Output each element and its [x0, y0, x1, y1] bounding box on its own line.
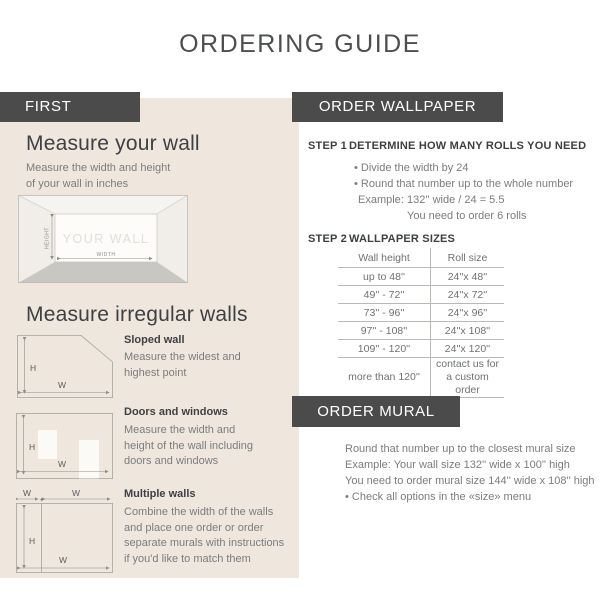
wall-diagram: YOUR WALL HEIGHT WIDTH — [18, 195, 188, 283]
step2-label: STEP 2 — [308, 233, 347, 245]
table-header-roll-size: Roll size — [431, 248, 505, 268]
wall-height-cell: 73'' - 96'' — [338, 304, 431, 322]
step2-title: WALLPAPER SIZES — [349, 233, 455, 245]
your-wall-label: YOUR WALL — [63, 232, 150, 246]
height-label: HEIGHT — [45, 227, 51, 249]
sloped-wall-description-line: highest point — [124, 366, 241, 382]
doors-windows-description-line: Measure the width and — [124, 423, 253, 439]
sloped-wall-diagram: H W — [17, 335, 113, 398]
table-row: 97'' - 108'' 24''x 108'' — [338, 322, 504, 340]
order-wallpaper-banner: ORDER WALLPAPER — [292, 92, 503, 122]
roll-size-cell: 24''x 72'' — [431, 286, 505, 304]
doors-windows-title: Doors and windows — [124, 406, 228, 418]
multiple-walls-description-line: if you'd like to match them — [124, 552, 284, 568]
table-row: up to 48'' 24''x 48'' — [338, 268, 504, 286]
sloped-wall-description: Measure the widest and highest point — [124, 350, 241, 381]
mural-instruction-line: • Check all options in the «size» menu — [345, 489, 595, 505]
table-header-row: Wall height Roll size — [338, 248, 504, 268]
roll-size-cell: 24''x 96'' — [431, 304, 505, 322]
multiple-walls-title: Multiple walls — [124, 488, 196, 500]
roll-size-cell: 24''x 108'' — [431, 322, 505, 340]
doors-windows-description: Measure the width and height of the wall… — [124, 423, 253, 470]
doors-windows-diagram: H W — [16, 413, 113, 479]
table-header-wall-height: Wall height — [338, 248, 431, 268]
order-mural-banner: ORDER MURAL — [292, 396, 460, 427]
h-label: H — [30, 363, 36, 373]
doors-windows-description-line: height of the wall including — [124, 439, 253, 455]
w-label: W — [58, 459, 66, 469]
w-label: W — [72, 488, 80, 498]
mural-instruction-line: Round that number up to the closest mura… — [345, 441, 595, 457]
first-banner: FIRST — [0, 92, 140, 122]
multiple-walls-description-line: separate murals with instructions — [124, 536, 284, 552]
measure-wall-description-line: Measure the width and height — [26, 160, 170, 176]
width-label: WIDTH — [97, 252, 116, 258]
measure-wall-description-line: of your wall in inches — [26, 176, 170, 192]
wall-height-cell: 97'' - 108'' — [338, 322, 431, 340]
wallpaper-sizes-table: Wall height Roll size up to 48'' 24''x 4… — [338, 248, 504, 398]
doors-windows-description-line: doors and windows — [124, 454, 253, 470]
window-shape — [38, 430, 57, 459]
plus-label: + — [39, 497, 43, 504]
table-row: more than 120'' contact us for a custom … — [338, 358, 504, 398]
w-label: W — [58, 380, 66, 390]
w-label: W — [59, 555, 67, 565]
multiple-walls-description-line: Combine the width of the walls — [124, 505, 284, 521]
wall-height-cell: 109'' - 120'' — [338, 340, 431, 358]
example-value: 132'' wide / 24 = 5.5 — [407, 192, 504, 208]
multiple-walls-description-line: and place one order or order — [124, 521, 284, 537]
multiple-walls-diagram: W + W H W — [16, 487, 113, 575]
door-shape — [79, 440, 99, 478]
page-title: ORDERING GUIDE — [0, 30, 600, 59]
example-label: Example: — [358, 192, 404, 208]
h-label: H — [29, 536, 35, 546]
wall-height-cell: 49'' - 72'' — [338, 286, 431, 304]
step1-bullet: • Round that number up to the whole numb… — [354, 176, 573, 192]
table-row: 49'' - 72'' 24''x 72'' — [338, 286, 504, 304]
sloped-wall-title: Sloped wall — [124, 334, 185, 346]
wall-height-cell: more than 120'' — [338, 358, 431, 398]
measure-wall-heading: Measure your wall — [26, 132, 200, 156]
mural-instruction-line: Example: Your wall size 132'' wide x 100… — [345, 457, 595, 473]
multiple-walls-description: Combine the width of the walls and place… — [124, 505, 284, 567]
mural-instruction-line: You need to order mural size 144'' wide … — [345, 473, 595, 489]
step1-bullet: • Divide the width by 24 — [354, 160, 469, 176]
step1-title: DETERMINE HOW MANY ROLLS YOU NEED — [349, 140, 586, 152]
roll-size-cell: contact us for a custom order — [431, 358, 505, 398]
sloped-wall-description-line: Measure the widest and — [124, 350, 241, 366]
table-row: 73'' - 96'' 24''x 96'' — [338, 304, 504, 322]
wall-height-cell: up to 48'' — [338, 268, 431, 286]
roll-size-cell: 24''x 48'' — [431, 268, 505, 286]
w-label: W — [23, 488, 31, 498]
table-row: 109'' - 120'' 24''x 120'' — [338, 340, 504, 358]
step1-label: STEP 1 — [308, 140, 347, 152]
h-label: H — [29, 442, 35, 452]
measure-wall-description: Measure the width and height of your wal… — [26, 160, 170, 192]
irregular-walls-heading: Measure irregular walls — [26, 303, 248, 327]
roll-size-cell: 24''x 120'' — [431, 340, 505, 358]
order-mural-instructions: Round that number up to the closest mura… — [345, 441, 595, 505]
example-result: You need to order 6 rolls — [407, 208, 526, 224]
